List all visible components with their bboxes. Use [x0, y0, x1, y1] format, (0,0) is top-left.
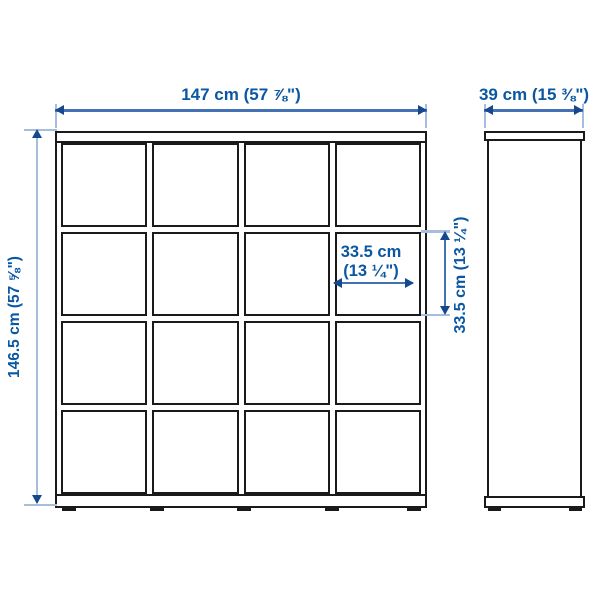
shelf-cell	[335, 321, 421, 405]
foot	[407, 507, 421, 512]
arrow-left-icon	[484, 105, 493, 115]
cell-height-label: 33.5 cm (13 ¼")	[451, 195, 471, 355]
shelf-cell	[244, 321, 330, 405]
side-body	[487, 141, 582, 496]
shelf-cell	[152, 232, 238, 316]
dimension-diagram: 147 cm (57 ⅞") 39 cm (15 ⅜") 146.5 cm (5…	[0, 0, 600, 600]
cell-width-dim-line	[334, 282, 413, 285]
shelf-cell	[61, 232, 147, 316]
front-bottom-panel	[57, 494, 425, 506]
cell-width-label-line1: 33.5 cm	[311, 243, 431, 262]
overall-height-dim-line	[36, 132, 39, 503]
foot	[325, 507, 339, 512]
arrow-up-icon	[440, 231, 450, 240]
side-view	[484, 131, 585, 508]
arrow-left-icon	[333, 278, 342, 288]
shelf-cell	[152, 410, 238, 494]
overall-height-label: 146.5 cm (57 ⅝")	[5, 242, 25, 392]
shelf-cell	[61, 321, 147, 405]
arrow-left-icon	[55, 105, 64, 115]
cell-height-dim-line	[444, 233, 447, 313]
foot	[237, 507, 251, 512]
side-top-panel	[484, 131, 585, 141]
foot	[569, 507, 582, 512]
foot	[150, 507, 164, 512]
shelf-cell	[335, 143, 421, 227]
shelf-cell	[244, 410, 330, 494]
shelf-cell	[152, 321, 238, 405]
foot	[62, 507, 76, 512]
shelf-cell	[244, 143, 330, 227]
foot	[488, 507, 501, 512]
arrow-up-icon	[32, 129, 42, 138]
arrow-down-icon	[440, 306, 450, 315]
arrow-right-icon	[418, 105, 427, 115]
arrow-right-icon	[405, 278, 414, 288]
shelf-cell	[61, 143, 147, 227]
overall-width-dim-line	[55, 109, 427, 112]
overall-width-label: 147 cm (57 ⅞")	[55, 85, 427, 104]
shelf-cell	[335, 410, 421, 494]
front-view	[55, 131, 427, 508]
front-top-panel	[57, 133, 425, 143]
shelf-cell	[152, 143, 238, 227]
depth-label: 39 cm (15 ⅜")	[469, 85, 599, 104]
arrow-down-icon	[32, 495, 42, 504]
front-grid	[57, 143, 425, 494]
depth-dim-line	[484, 109, 583, 112]
arrow-right-icon	[574, 105, 583, 115]
shelf-cell	[61, 410, 147, 494]
